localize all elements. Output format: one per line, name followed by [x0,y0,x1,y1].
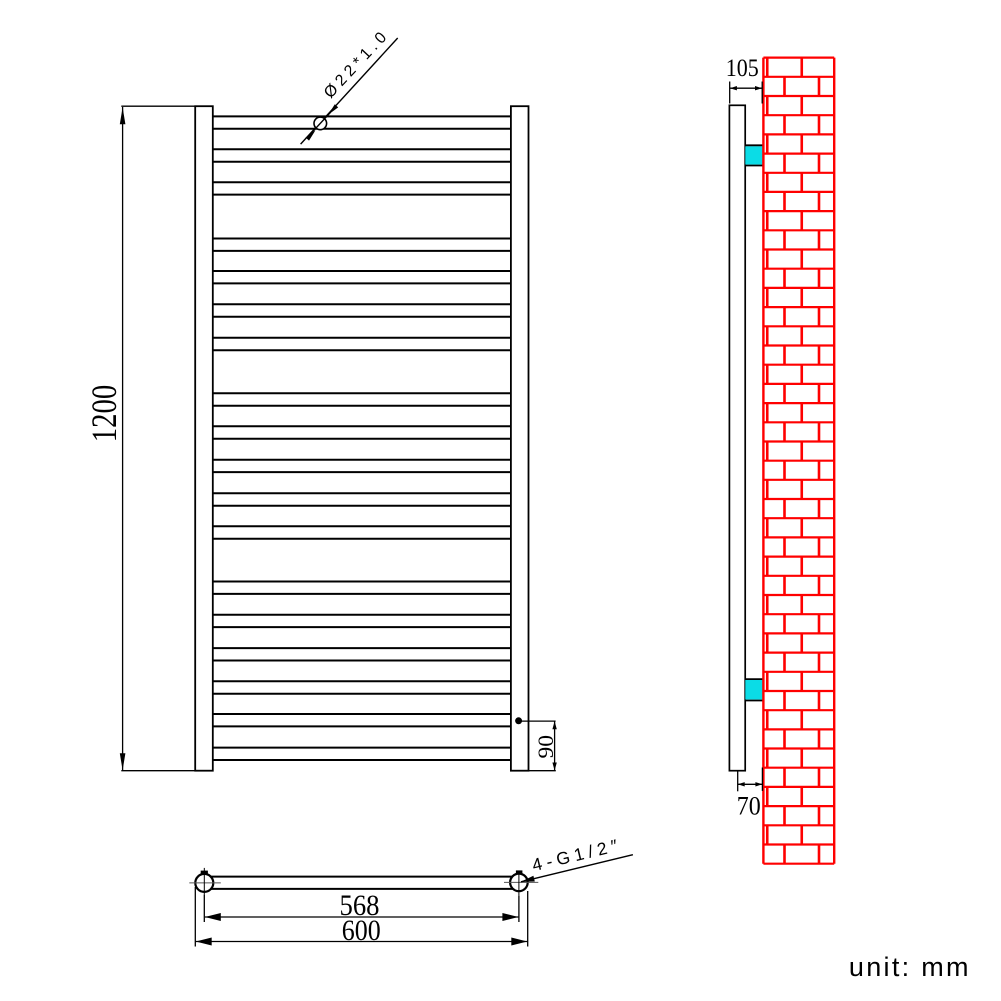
svg-text:600: 600 [342,914,381,947]
svg-text:90: 90 [533,735,558,759]
svg-text:70: 70 [737,792,761,821]
svg-text:unit: mm: unit: mm [849,952,971,982]
svg-text:1200: 1200 [84,385,124,443]
svg-text:105: 105 [726,55,759,82]
